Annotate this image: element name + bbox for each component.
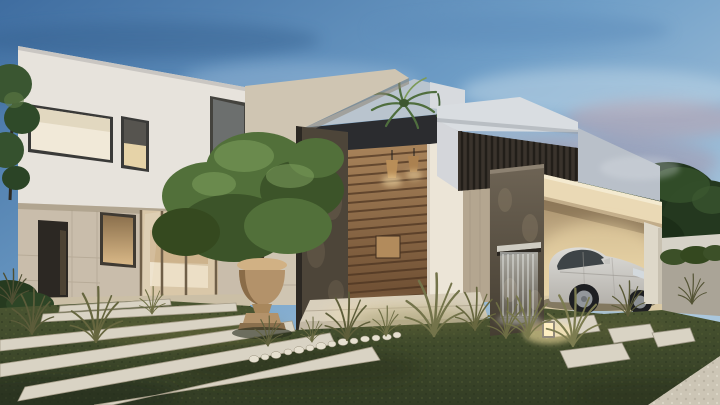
- waterfall: [500, 252, 538, 318]
- ground-floor-window: [100, 212, 136, 268]
- right-garden-backdrop: [660, 234, 720, 316]
- carport-pillar: [644, 222, 662, 304]
- villa-render-canvas: [0, 0, 720, 405]
- doorway-glow: [60, 230, 66, 295]
- driveway: [662, 258, 720, 316]
- villa-render: [0, 0, 720, 405]
- door-jamb: [427, 144, 430, 302]
- door-handle-panel: [376, 236, 400, 258]
